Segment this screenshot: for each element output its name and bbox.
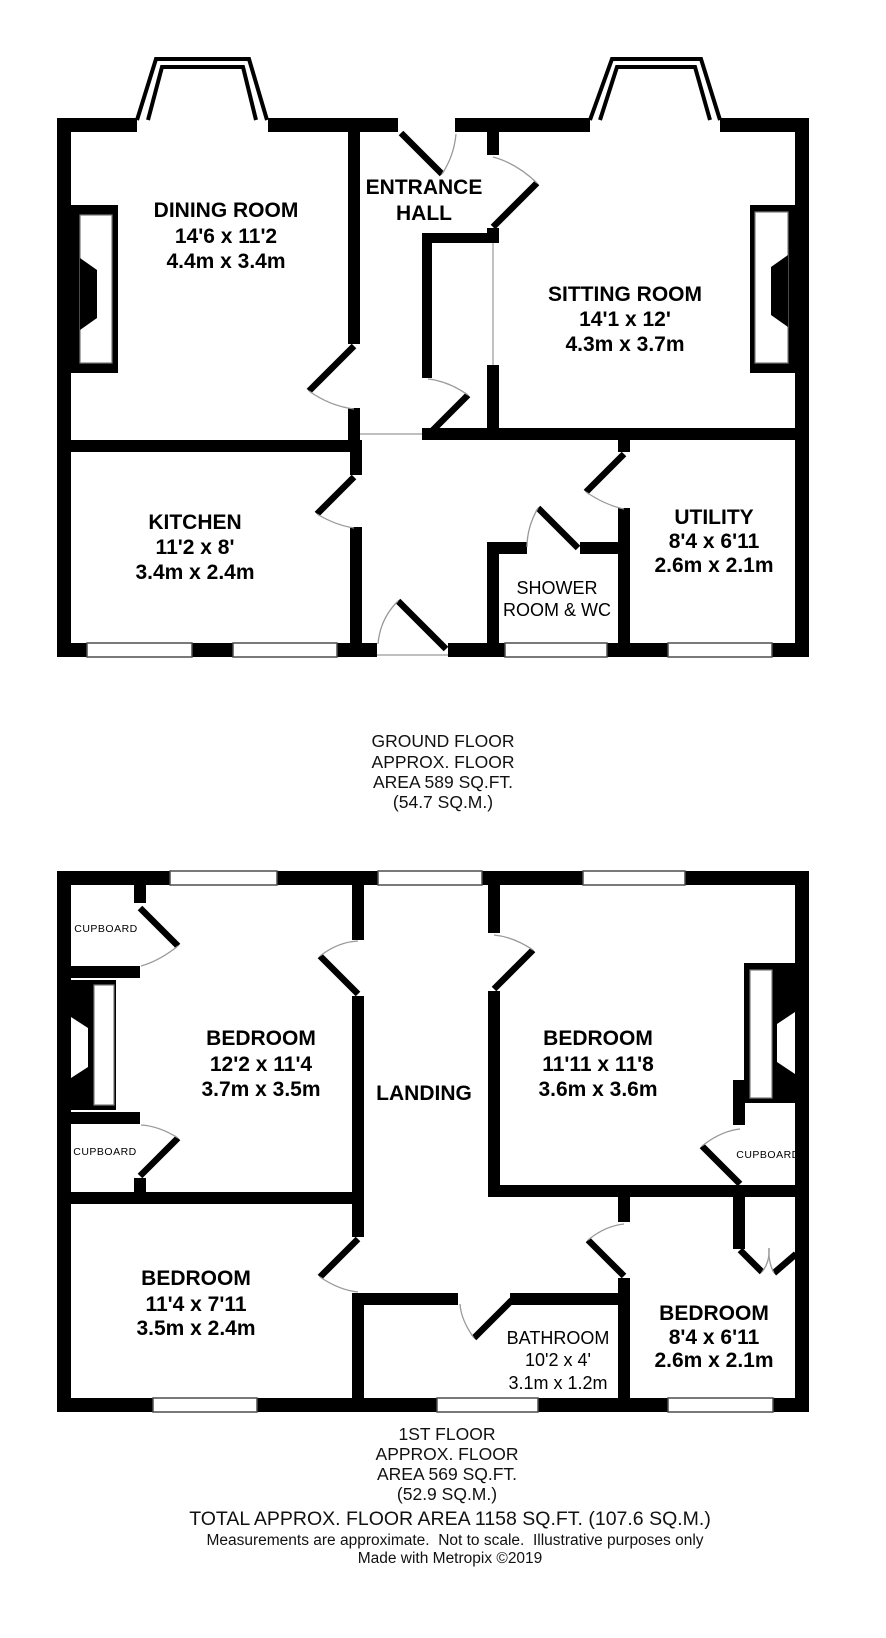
bedroom2-size-m: 3.6m x 3.6m <box>538 1078 657 1101</box>
bedroom3-window-icon <box>153 1398 257 1412</box>
bedroom4-size-ft: 8'4 x 6'11 <box>669 1326 760 1349</box>
ground-floor-plan: DINING ROOM 14'6 x 11'2 4.4m x 3.4m ENTR… <box>57 59 809 812</box>
bathroom-door-icon <box>460 1300 512 1338</box>
dining-door-icon <box>309 346 354 409</box>
bedroom4-window-icon <box>668 1398 773 1412</box>
left-chimney-window-icon <box>58 980 116 1110</box>
bathroom-size-m: 3.1m x 1.2m <box>508 1373 607 1393</box>
utility-door-icon <box>586 454 624 509</box>
shower-room-name-line2: ROOM & WC <box>503 600 611 620</box>
bedroom3-size-m: 3.5m x 2.4m <box>136 1317 255 1340</box>
floorplan-page: DINING ROOM 14'6 x 11'2 4.4m x 3.4m ENTR… <box>0 0 886 1638</box>
bedroom2-name: BEDROOM <box>543 1027 653 1050</box>
cupboard-mid-left-label: CUPBOARD <box>73 1146 137 1158</box>
dining-bay-window-icon <box>137 59 267 120</box>
ground-caption-line1: GROUND FLOOR <box>372 731 515 751</box>
total-area-text: TOTAL APPROX. FLOOR AREA 1158 SQ.FT. (10… <box>189 1508 711 1530</box>
entrance-hall-name-line2: HALL <box>396 202 452 225</box>
bedroom2-door-icon <box>494 935 533 989</box>
kitchen-size-m: 3.4m x 2.4m <box>135 561 254 584</box>
bathroom-window-icon <box>437 1398 538 1412</box>
utility-name: UTILITY <box>674 506 753 529</box>
dining-room-name: DINING ROOM <box>154 199 299 222</box>
cupboard-top-left-label: CUPBOARD <box>74 923 138 935</box>
shower-room-name-line1: SHOWER <box>517 578 598 598</box>
bedroom2-size-ft: 11'11 x 11'8 <box>542 1053 654 1076</box>
sitting-room-size-ft: 14'1 x 12' <box>579 308 671 331</box>
bedroom2-window-icon <box>583 871 685 885</box>
sitting-room-size-m: 4.3m x 3.7m <box>565 333 684 356</box>
ground-caption-line3: AREA 589 SQ.FT. <box>373 772 513 792</box>
first-caption-line2: APPROX. FLOOR <box>376 1444 519 1464</box>
floorplan-canvas: DINING ROOM 14'6 x 11'2 4.4m x 3.4m ENTR… <box>0 0 886 1638</box>
bedroom3-size-ft: 11'4 x 7'11 <box>145 1293 246 1316</box>
sitting-room-name: SITTING ROOM <box>548 283 702 306</box>
utility-size-m: 2.6m x 2.1m <box>654 554 773 577</box>
bedroom4-door-icon <box>588 1224 624 1276</box>
dining-room-size-m: 4.4m x 3.4m <box>166 250 285 273</box>
cupboard-top-left-door-icon <box>140 908 178 966</box>
bedroom4-name: BEDROOM <box>659 1302 769 1325</box>
ground-caption-line2: APPROX. FLOOR <box>372 752 515 772</box>
first-floor-caption: 1ST FLOOR APPROX. FLOOR AREA 569 SQ.FT. … <box>376 1424 519 1504</box>
bathroom-name: BATHROOM <box>507 1328 610 1348</box>
sitting-bay-window-icon <box>590 59 720 120</box>
kitchen-door-icon <box>317 477 354 528</box>
first-caption-line3: AREA 569 SQ.FT. <box>377 1464 517 1484</box>
shower-door-icon <box>527 508 578 548</box>
first-floor-plan: CUPBOARD CUPBOARD CUPBOARD BEDROOM 12'2 … <box>57 871 809 1504</box>
entrance-hall-name-line1: ENTRANCE <box>366 176 483 199</box>
utility-size-ft: 8'4 x 6'11 <box>669 530 760 553</box>
kitchen-window2-icon <box>233 643 337 657</box>
footer: TOTAL APPROX. FLOOR AREA 1158 SQ.FT. (10… <box>189 1508 711 1567</box>
bedroom1-size-m: 3.7m x 3.5m <box>201 1078 320 1101</box>
dining-fireplace-icon <box>58 205 118 373</box>
bathroom-size-ft: 10'2 x 4' <box>525 1350 591 1370</box>
credit-text: Made with Metropix ©2019 <box>358 1550 543 1567</box>
stairs-door-icon <box>427 379 468 436</box>
cupboard-right-label: CUPBOARD <box>736 1149 800 1161</box>
dining-room-size-ft: 14'6 x 11'2 <box>175 225 277 248</box>
landing-window-icon <box>378 871 482 885</box>
kitchen-window-icon <box>87 643 192 657</box>
bedroom4-bifold-door-icon <box>740 1248 796 1273</box>
cupboard-right-door-icon <box>702 1129 740 1184</box>
ground-caption-line4: (54.7 SQ.M.) <box>393 792 493 812</box>
sitting-door-icon <box>493 157 537 227</box>
utility-window-icon <box>668 643 772 657</box>
right-chimney-window-icon <box>744 963 809 1103</box>
bedroom1-door-icon <box>320 941 358 994</box>
kitchen-name: KITCHEN <box>148 511 241 534</box>
bedroom3-name: BEDROOM <box>141 1267 251 1290</box>
front-door-icon <box>401 133 456 174</box>
first-caption-line4: (52.9 SQ.M.) <box>397 1484 497 1504</box>
bedroom1-name: BEDROOM <box>206 1027 316 1050</box>
disclaimer-text: Measurements are approximate. Not to sca… <box>206 1532 703 1549</box>
ground-floor-caption: GROUND FLOOR APPROX. FLOOR AREA 589 SQ.F… <box>372 731 515 812</box>
first-floor-labels: CUPBOARD CUPBOARD CUPBOARD BEDROOM 12'2 … <box>73 923 800 1393</box>
bedroom3-door-icon <box>320 1239 358 1292</box>
bedroom4-size-m: 2.6m x 2.1m <box>654 1349 773 1372</box>
sitting-fireplace-icon <box>750 205 809 373</box>
first-caption-line1: 1ST FLOOR <box>399 1424 496 1444</box>
shower-window-icon <box>505 643 607 657</box>
cupboard-mid-left-door-icon <box>140 1125 178 1176</box>
bedroom1-window-icon <box>170 871 277 885</box>
landing-name: LANDING <box>376 1082 472 1105</box>
back-door-icon <box>378 601 446 649</box>
kitchen-size-ft: 11'2 x 8' <box>156 536 235 559</box>
bedroom1-size-ft: 12'2 x 11'4 <box>210 1053 313 1076</box>
